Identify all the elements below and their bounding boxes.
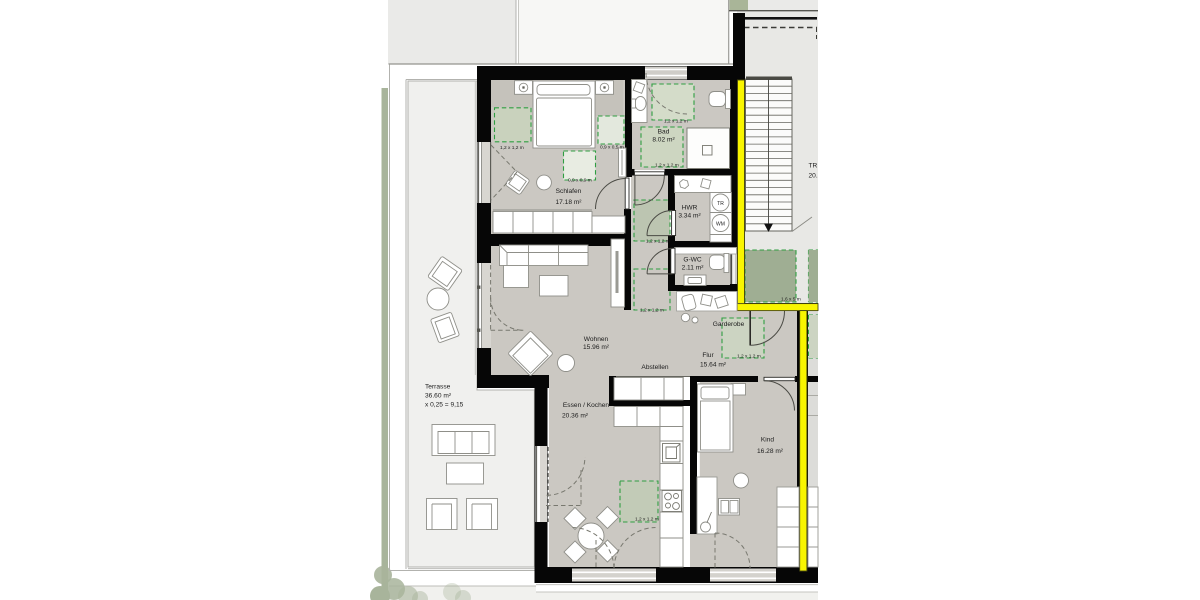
svg-text:TR: TR [809,163,818,170]
svg-text:Kind: Kind [761,437,775,444]
svg-text:17.18 m²: 17.18 m² [555,199,582,206]
svg-text:2.11 m²: 2.11 m² [682,264,705,271]
svg-text:8.02 m²: 8.02 m² [652,137,675,144]
svg-text:0,9 x 0,5 m: 0,9 x 0,5 m [600,144,624,150]
svg-text:1,6 x 5 m: 1,6 x 5 m [781,297,801,303]
svg-text:36.60 m²: 36.60 m² [425,393,452,400]
svg-text:Bad: Bad [658,129,670,136]
svg-text:Garderobe: Garderobe [713,321,745,328]
svg-text:Abstellen: Abstellen [641,364,668,371]
svg-text:1,2 x 1,2 m: 1,2 x 1,2 m [646,238,670,244]
svg-text:WM: WM [716,221,725,227]
svg-text:G-WC: G-WC [683,256,702,263]
svg-text:Flur: Flur [702,352,714,359]
svg-text:15.96 m²: 15.96 m² [583,344,610,351]
svg-text:Schlafen: Schlafen [556,188,582,195]
svg-text:Terrasse: Terrasse [425,384,451,391]
svg-text:1,2 x 1,2 m: 1,2 x 1,2 m [500,145,524,151]
svg-text:Wohnen: Wohnen [584,336,609,343]
svg-text:1,2 x 1,2 m: 1,2 x 1,2 m [635,517,659,523]
svg-text:3.34 m²: 3.34 m² [678,212,701,219]
svg-text:16.28 m²: 16.28 m² [757,448,784,455]
svg-text:0,9 x 0,9 m: 0,9 x 0,9 m [568,177,592,183]
svg-text:1,2 x 1,2 m: 1,2 x 1,2 m [640,307,664,313]
svg-text:1,2 x 1,2 m: 1,2 x 1,2 m [737,353,761,359]
svg-text:1,2 x 1,2 m: 1,2 x 1,2 m [664,118,688,124]
svg-text:1,2 x 1,2 m: 1,2 x 1,2 m [655,162,679,168]
svg-text:HWR: HWR [682,204,698,211]
svg-text:x 0,25 = 9,15: x 0,25 = 9,15 [425,402,464,409]
svg-text:TR: TR [717,201,724,207]
svg-text:Essen / Kochen: Essen / Kochen [563,402,610,409]
svg-text:20.: 20. [809,173,818,180]
svg-text:20.36 m²: 20.36 m² [562,412,589,419]
svg-text:15.64 m²: 15.64 m² [700,361,727,368]
